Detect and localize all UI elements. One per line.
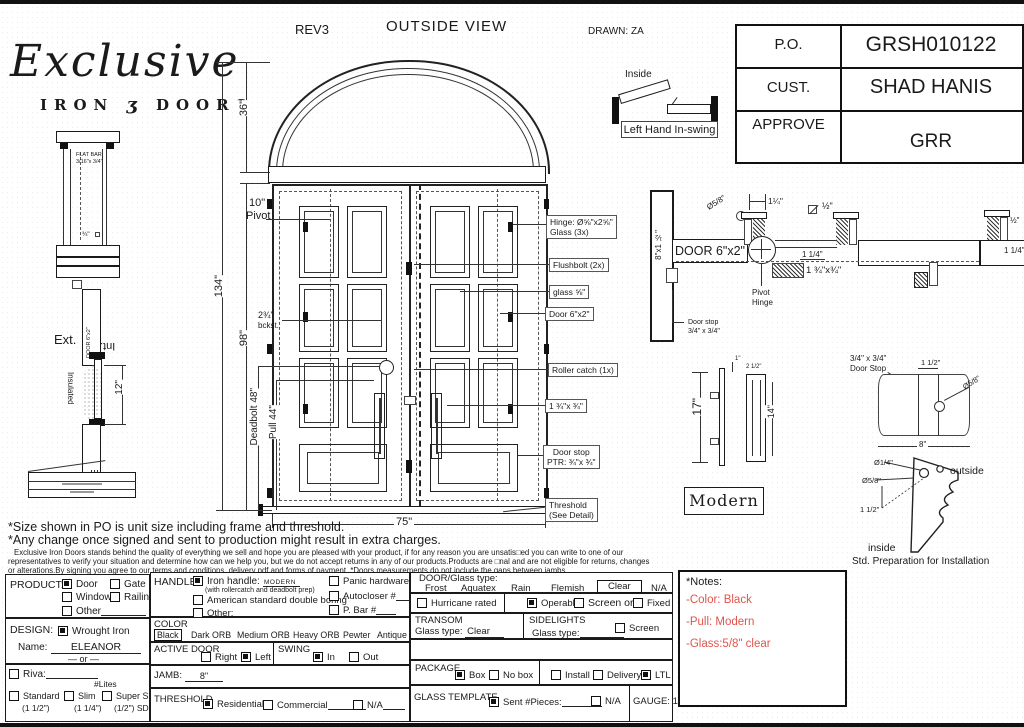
design-or: — or — (68, 654, 99, 664)
glass-pane (478, 206, 518, 278)
disclaimer-l2: *Any change once signed and sent to prod… (8, 533, 441, 547)
callout-flushbolt: Flushbolt (2x) (549, 258, 609, 272)
handle-dim-212: 2 1/2" (746, 364, 761, 370)
disclaimer-l4: representatives to verify your situation… (8, 557, 649, 566)
product-gate-option[interactable]: Gate (110, 579, 146, 590)
design-name-label: Name: (18, 642, 47, 653)
jamb-label: JAMB: (154, 670, 182, 681)
rev-label: REV3 (295, 22, 329, 37)
pull-dim-line (276, 380, 277, 510)
panic-option[interactable]: Panic hardware (329, 576, 409, 587)
standard-size: (1 1/2") (22, 703, 50, 713)
dim-75: 75" (394, 516, 414, 528)
hsec-frame-hatch (836, 219, 848, 245)
section-line (63, 149, 64, 245)
section-jamb-cap (56, 245, 120, 257)
color-heavy-orb[interactable]: Heavy ORB (293, 630, 339, 640)
section-jamb-low (56, 266, 120, 278)
dim-line-14 (772, 382, 773, 456)
gauge-divider (629, 686, 630, 721)
flat-bar-note: FLAT BAR 3/16"x 3/4" (76, 152, 103, 165)
swing-jamb-right (711, 96, 718, 123)
design-wrought-option[interactable]: Wrought Iron (58, 626, 130, 637)
checkbox-nobox[interactable] (489, 670, 499, 680)
section-head-cap (56, 131, 120, 143)
threshold-micro-text (62, 483, 102, 485)
ext-label: Ext. (54, 332, 76, 347)
autocloser-option[interactable]: Autocloser # (329, 590, 414, 602)
hsec-dim114b: 1 1/4" (800, 250, 825, 260)
color-pewter[interactable]: Pewter (343, 630, 370, 640)
leader-line (460, 291, 549, 292)
sq-note: ¾" (82, 231, 90, 238)
active-swing-divider (273, 643, 274, 664)
hsec-block-dim: 1 ¾"x¾" (806, 265, 841, 276)
checkbox-other[interactable] (62, 606, 72, 616)
handle-box: HANDLE Iron handle: MODERN (with rollerc… (150, 572, 410, 617)
hinge-mark (544, 344, 549, 354)
int-label: Int. (100, 340, 115, 352)
section-detail (60, 143, 68, 149)
deadbolt-leader (258, 366, 379, 367)
checkbox-wrought-iron[interactable] (58, 626, 68, 636)
glass-pane (347, 284, 387, 352)
product-door-option[interactable]: Door (62, 579, 98, 590)
product-label: PRODUCT: (10, 579, 64, 591)
checkbox-residential[interactable] (203, 699, 213, 709)
approve-label: APPROVE (737, 116, 840, 133)
callout-lockbox: 1 ¾"x ¾" (545, 399, 587, 413)
stop-groove (918, 374, 919, 436)
approve-value: GRR (840, 131, 1022, 153)
template-na-option[interactable]: N/A (591, 696, 621, 707)
hsec-frame-cap (833, 212, 859, 219)
dim-line-12 (122, 365, 123, 425)
stop-note-l1: 3/4" x 3/4" (850, 354, 886, 364)
package-box: PACKAGE Box No box Install Delivery LTL (410, 660, 673, 685)
disclaimer-l1: *Size shown in PO is unit size including… (8, 520, 344, 534)
checkbox-right[interactable] (201, 652, 211, 662)
section-dashed (80, 152, 81, 240)
handle-front-line (752, 380, 753, 456)
swing-door-fixed (667, 104, 711, 114)
color-medium-orb[interactable]: Medium ORB (237, 630, 290, 640)
glass-pane (430, 206, 470, 278)
checkbox-template-na[interactable] (591, 696, 601, 706)
hsec-rail (775, 247, 837, 248)
flushbolt-mark (406, 262, 412, 275)
hsec-door-label: DOOR 6"x2" (672, 239, 748, 263)
checkbox-operable[interactable] (527, 598, 537, 608)
dim-tick (216, 62, 270, 63)
backset-label: bckst. (258, 321, 279, 330)
section-detail (106, 143, 114, 149)
hsec-hatch-square (914, 272, 928, 288)
sidelights-screen-option[interactable]: Screen (615, 623, 659, 634)
pivot-hinge-circle (748, 236, 776, 264)
hsec-doorstop-note: Door stop 3/4" x 3/4" (688, 318, 720, 336)
design-label: DESIGN: (10, 624, 53, 636)
callout-glass: glass ⅝" (549, 285, 589, 299)
checkbox-american[interactable] (193, 595, 203, 605)
handle-dim-17: 17" (688, 398, 706, 416)
stop-dim-8: 8" (917, 440, 928, 449)
checkbox-fixed[interactable] (633, 598, 643, 608)
hsec-r114: 1 1/4" (1004, 246, 1024, 255)
glass-type-box: DOOR/Glass type: Frost Aquatex Rain Flem… (410, 572, 673, 593)
glass-template-label: GLASS TEMPLATE (414, 692, 498, 703)
checkbox-autocloser[interactable] (329, 591, 339, 601)
section-stop (72, 280, 82, 289)
checkbox-railing[interactable] (110, 592, 120, 602)
po-table-row-line (737, 110, 1022, 112)
checkbox-threshold-na[interactable] (353, 700, 363, 710)
design-box: DESIGN: Wrought Iron Name: ELEANOR — or … (5, 618, 150, 664)
cust-value: SHAD HANIS (840, 76, 1022, 99)
hsec-rail (775, 240, 837, 241)
swing-jamb-left (612, 97, 619, 124)
hsec-rhalf: ½" (1010, 216, 1020, 225)
checkbox-riva[interactable] (9, 669, 19, 679)
section-line (106, 149, 107, 245)
empty-row-box (410, 639, 673, 660)
checkbox-panic[interactable] (329, 576, 339, 586)
checkbox-sidelight-screen[interactable] (615, 623, 625, 633)
leader-line (672, 322, 684, 323)
sent-pieces-option[interactable]: Sent #Pieces: (489, 696, 602, 708)
handle-caption: Modern (684, 487, 764, 515)
hsec-dim114: 1¼" (768, 196, 783, 206)
callout-door: Door 6"x2" (545, 307, 594, 321)
product-window-option[interactable]: Window (62, 592, 112, 603)
transom-label: TRANSOM (415, 615, 463, 626)
callout-roller: Roller catch (1x) (548, 363, 618, 377)
box-option[interactable]: Box (455, 670, 485, 681)
sidelights-label: SIDELIGHTS (529, 615, 586, 626)
handle-label: HANDLE (154, 576, 197, 588)
stop-note: 3/4" x 3/4" Door Stop (850, 354, 886, 375)
dim-tick (765, 194, 766, 210)
hsec-doorstop-l1: Door stop (688, 318, 720, 327)
american-option[interactable]: American standard double boring (193, 595, 347, 606)
active-swing-box: ACTIVE DOOR Right Left SWING In Out (150, 642, 410, 665)
delivery-option[interactable]: Delivery (593, 670, 641, 681)
hsec-frame (849, 219, 857, 245)
callout-threshold-l1: Threshold (549, 500, 594, 510)
hsec-frame-cap (984, 210, 1010, 217)
dim-tick (240, 172, 270, 173)
sidelights-glass-type[interactable]: Glass type: (532, 627, 624, 639)
checkbox-pbar[interactable] (329, 605, 339, 615)
threshold-line (28, 489, 136, 490)
hinge-mark (303, 222, 308, 232)
leader-line (761, 264, 762, 286)
checkbox-install[interactable] (551, 670, 561, 680)
section-door-label: DOOR 6"x2" (86, 296, 92, 358)
hinge-mark (544, 199, 549, 209)
color-black-selected[interactable]: Black (154, 629, 182, 641)
screen-or-option[interactable]: Screen or (574, 597, 634, 609)
flat-bar-l2: 3/16"x 3/4" (76, 159, 103, 166)
logo-glyph-icon: ʒ (127, 94, 144, 115)
callout-hinge-l2: Glass (3x) (550, 227, 613, 237)
riva-option[interactable]: Riva: (9, 668, 98, 680)
threshold-line (28, 481, 136, 482)
other-blank[interactable] (101, 605, 146, 616)
flat-bar-l1: FLAT BAR (76, 152, 103, 159)
callout-threshold: Threshold (See Detail) (545, 498, 598, 522)
jamb-value[interactable]: 8" (185, 671, 223, 682)
pivot-cross (761, 239, 762, 259)
pivot-hinge-l2: Hinge (752, 298, 773, 308)
door-pull-right (431, 393, 442, 459)
hinge-mark (267, 199, 272, 209)
dim-line-17 (700, 372, 701, 462)
threshold-box: THRESHOLD Residential Commercial N/A (150, 688, 410, 722)
hsec-jamb-label: 8"x1 ½" (654, 230, 663, 260)
gauge-value: GAUGE: 14 (633, 696, 683, 707)
stop-dim-112: 1 1/2" (921, 358, 940, 367)
slim-size: (1 1/4") (74, 703, 102, 713)
note-color: -Color: Black (686, 594, 752, 606)
checkbox-sent[interactable] (489, 697, 499, 707)
leader-line (500, 313, 545, 314)
glass-template-box: GLASS TEMPLATE Sent #Pieces: N/A GAUGE: … (410, 685, 673, 722)
leader-line (414, 369, 548, 370)
pivot-hinge-note: Pivot Hinge (752, 288, 773, 309)
nobox-option[interactable]: No box (489, 670, 533, 681)
swing-out-option[interactable]: Out (349, 652, 378, 663)
inside-label2: inside (868, 542, 895, 554)
swing-in-option[interactable]: In (313, 652, 335, 663)
fixed-option[interactable]: Fixed (633, 598, 670, 609)
dim-tick (216, 510, 272, 511)
checkbox-screen[interactable] (574, 598, 584, 608)
backset-dim: 2¾" (258, 310, 274, 320)
leader-line (414, 264, 549, 265)
hinge-mark (267, 344, 272, 354)
checkbox-slim[interactable] (64, 691, 74, 701)
hsec-small-rect (929, 262, 938, 286)
install-caption: Std. Preparation for Installation (852, 556, 989, 567)
dim-36: 36" (236, 100, 252, 116)
inst-dim112: 1 1/2" (860, 505, 879, 514)
inst-dia58: Ø5/8" (862, 476, 881, 485)
dim-134: 134" (211, 275, 227, 297)
checkbox-out[interactable] (349, 652, 359, 662)
hurricane-option[interactable]: Hurricane rated (417, 598, 496, 609)
active-left-option[interactable]: Left (241, 652, 271, 663)
checkbox-in[interactable] (313, 652, 323, 662)
transom-divider (523, 614, 524, 638)
ltl-option[interactable]: LTL (641, 670, 671, 681)
dim-line-98 (246, 183, 247, 510)
glass-clear-selected[interactable]: Clear (597, 580, 642, 593)
riva-blank[interactable] (46, 668, 98, 679)
callout-doorstop-l1: Door stop (547, 447, 596, 457)
checkbox-gate[interactable] (110, 579, 120, 589)
outside-label: outside (950, 465, 984, 477)
bottom-border (0, 723, 1024, 727)
glass-pane (299, 358, 339, 428)
checkbox-standard[interactable] (9, 691, 19, 701)
superslim-size: (1/2") SDL (114, 703, 153, 713)
pivot-arrow-line (266, 219, 330, 220)
po-table-row-line (737, 67, 1022, 69)
dim-line (918, 368, 938, 369)
hsec-dashed-line (676, 261, 1024, 262)
handle-dim-1: 1" (735, 356, 740, 362)
handle-standoff (710, 438, 719, 445)
product-other-option[interactable]: Other (62, 605, 146, 617)
residential-option[interactable]: Residential (203, 699, 264, 710)
hinge-mark (544, 488, 549, 498)
pivot-dim-label: Pivot (246, 210, 270, 222)
handle-front-line (760, 380, 761, 456)
note-glass: -Glass:5/8" clear (686, 638, 771, 650)
swing-caption: Left Hand In-swing (621, 121, 718, 138)
hsec-door-leaf (858, 240, 980, 266)
product-railing-option[interactable]: Railing (110, 592, 155, 603)
note-pull: -Pull: Modern (686, 616, 754, 628)
pivot-hinge-l1: Pivot (752, 288, 773, 298)
pbar-option[interactable]: P. Bar # (329, 604, 396, 616)
color-dark-orb[interactable]: Dark ORB (191, 630, 231, 640)
glass-pane (299, 206, 339, 278)
backset-line (282, 320, 382, 321)
dim-line (749, 201, 765, 202)
install-option[interactable]: Install (551, 670, 590, 681)
threshold-body (28, 472, 136, 498)
iron-handle-sub: (with rollercatch and deadbolt prep) (205, 587, 315, 594)
threshold-micro-text (70, 491, 94, 493)
hinge-mark (303, 404, 308, 414)
checkbox-superslim[interactable] (102, 691, 112, 701)
checkbox-left[interactable] (241, 652, 251, 662)
sq-note-icon (95, 232, 100, 237)
inside-label: Inside (625, 69, 652, 80)
drawn-by: DRAWN: ZA (588, 26, 644, 37)
dim-12: 12" (112, 380, 127, 395)
stop-note-l2: Door Stop (850, 364, 886, 374)
hsec-dia58: Ø5/8" (705, 193, 727, 211)
operable-divider (504, 594, 505, 612)
pull-dim: Pull 44" (266, 405, 281, 439)
leader-line (732, 362, 733, 372)
leader-line (447, 405, 545, 406)
pivot-dim-10: 10" (249, 197, 265, 209)
checkbox-window[interactable] (62, 592, 72, 602)
product-box: PRODUCT: Door Gate Window Railing Other (5, 574, 150, 618)
glass-pane (347, 206, 387, 278)
deadbolt-circle (379, 360, 394, 375)
logo-script: Exclusive (10, 36, 240, 87)
callout-threshold-l2: (See Detail) (549, 510, 594, 520)
dim-line-36 (246, 62, 247, 172)
pull-leader (276, 380, 374, 381)
handle-standoff (710, 392, 719, 399)
insulated-fill (83, 364, 101, 422)
handle-side-bar (719, 368, 725, 466)
slim-option[interactable]: Slim (64, 691, 96, 701)
center-dashed-line (419, 184, 421, 506)
callout-doorstop-l2: PTR: ¾"x ¾" (547, 457, 596, 467)
glass-pane (430, 284, 470, 352)
notes-box: *Notes: -Color: Black -Pull: Modern -Gla… (678, 570, 847, 707)
callout-hinge-l1: Hinge: Ø⅝"x2⅝" (550, 217, 613, 227)
checkbox-iron-handle[interactable] (193, 576, 203, 586)
swing-door-leaf (618, 79, 671, 104)
hinge-mark (267, 488, 272, 498)
transom-bar (268, 166, 546, 183)
po-table: P.O. GRSH010122 CUST. SHAD HANIS APPROVE… (735, 24, 1024, 164)
checkbox-hurricane[interactable] (417, 598, 427, 608)
commercial-option[interactable]: Commercial (263, 699, 366, 711)
hsec-hatch-block (772, 263, 804, 278)
threshold-na-blank[interactable] (383, 699, 405, 710)
bottom-panel-right (430, 444, 518, 492)
callout-doorstop: Door stop PTR: ¾"x ¾" (543, 445, 600, 469)
stop-hole (934, 401, 945, 412)
top-border (0, 0, 1024, 4)
transom-sidelights-box: TRANSOM Glass type: Clear SIDELIGHTS Gla… (410, 613, 673, 639)
standard-option[interactable]: Standard (9, 691, 60, 701)
po-value: GRSH010122 (840, 33, 1022, 57)
callout-hinge: Hinge: Ø⅝"x2⅝" Glass (3x) (546, 215, 617, 239)
hsec-frame-cap (741, 212, 767, 219)
transom-glass-value: Clear (465, 626, 504, 638)
operable-box: Hurricane rated Operable Screen or Fixed (410, 593, 673, 613)
package-divider (539, 661, 540, 684)
pbar-blank[interactable] (376, 604, 396, 615)
stop-body (878, 374, 970, 436)
iron-handle-value[interactable]: MODERN (263, 579, 300, 587)
deadbolt-dim: Deadbolt 48" (247, 388, 262, 445)
dim-98: 98" (236, 330, 252, 346)
threshold-na-option[interactable]: N/A (353, 699, 405, 711)
color-box: COLOR Black Dark ORB Medium ORB Heavy OR… (150, 617, 410, 642)
transom-glass-type[interactable]: Glass type: Clear (415, 626, 504, 637)
section-line (70, 149, 71, 245)
checkbox-door[interactable] (62, 579, 72, 589)
view-title: OUTSIDE VIEW (386, 18, 507, 35)
lites-label: #Lites (94, 679, 117, 689)
active-right-option[interactable]: Right (201, 652, 237, 663)
leader-line (513, 224, 546, 225)
dim-tick (240, 183, 270, 184)
checkbox-commercial[interactable] (263, 700, 273, 710)
notes-title: *Notes: (686, 576, 722, 588)
design-name-value[interactable]: ELEANOR (51, 641, 141, 654)
checkbox-ltl[interactable] (641, 670, 651, 680)
hsec-doorstop-l2: 3/4" x 3/4" (688, 327, 720, 336)
checkbox-box[interactable] (455, 670, 465, 680)
door-pull-left (374, 393, 385, 459)
hsec-jamb-bar (650, 190, 674, 342)
latch-box (404, 396, 416, 405)
swing-label: SWING (278, 644, 310, 655)
operable-option[interactable]: Operable (527, 598, 580, 609)
leader-line (672, 290, 673, 322)
cust-label: CUST. (737, 79, 840, 96)
leader-line (518, 455, 543, 456)
checkbox-delivery[interactable] (593, 670, 603, 680)
hsec-half: ½" (822, 201, 833, 211)
inst-dia14: Ø1/4" (874, 458, 893, 467)
iron-handle-option[interactable]: Iron handle: (193, 576, 260, 587)
insulated-label: Insulated (66, 372, 75, 404)
hsec-stop-square (666, 268, 678, 283)
